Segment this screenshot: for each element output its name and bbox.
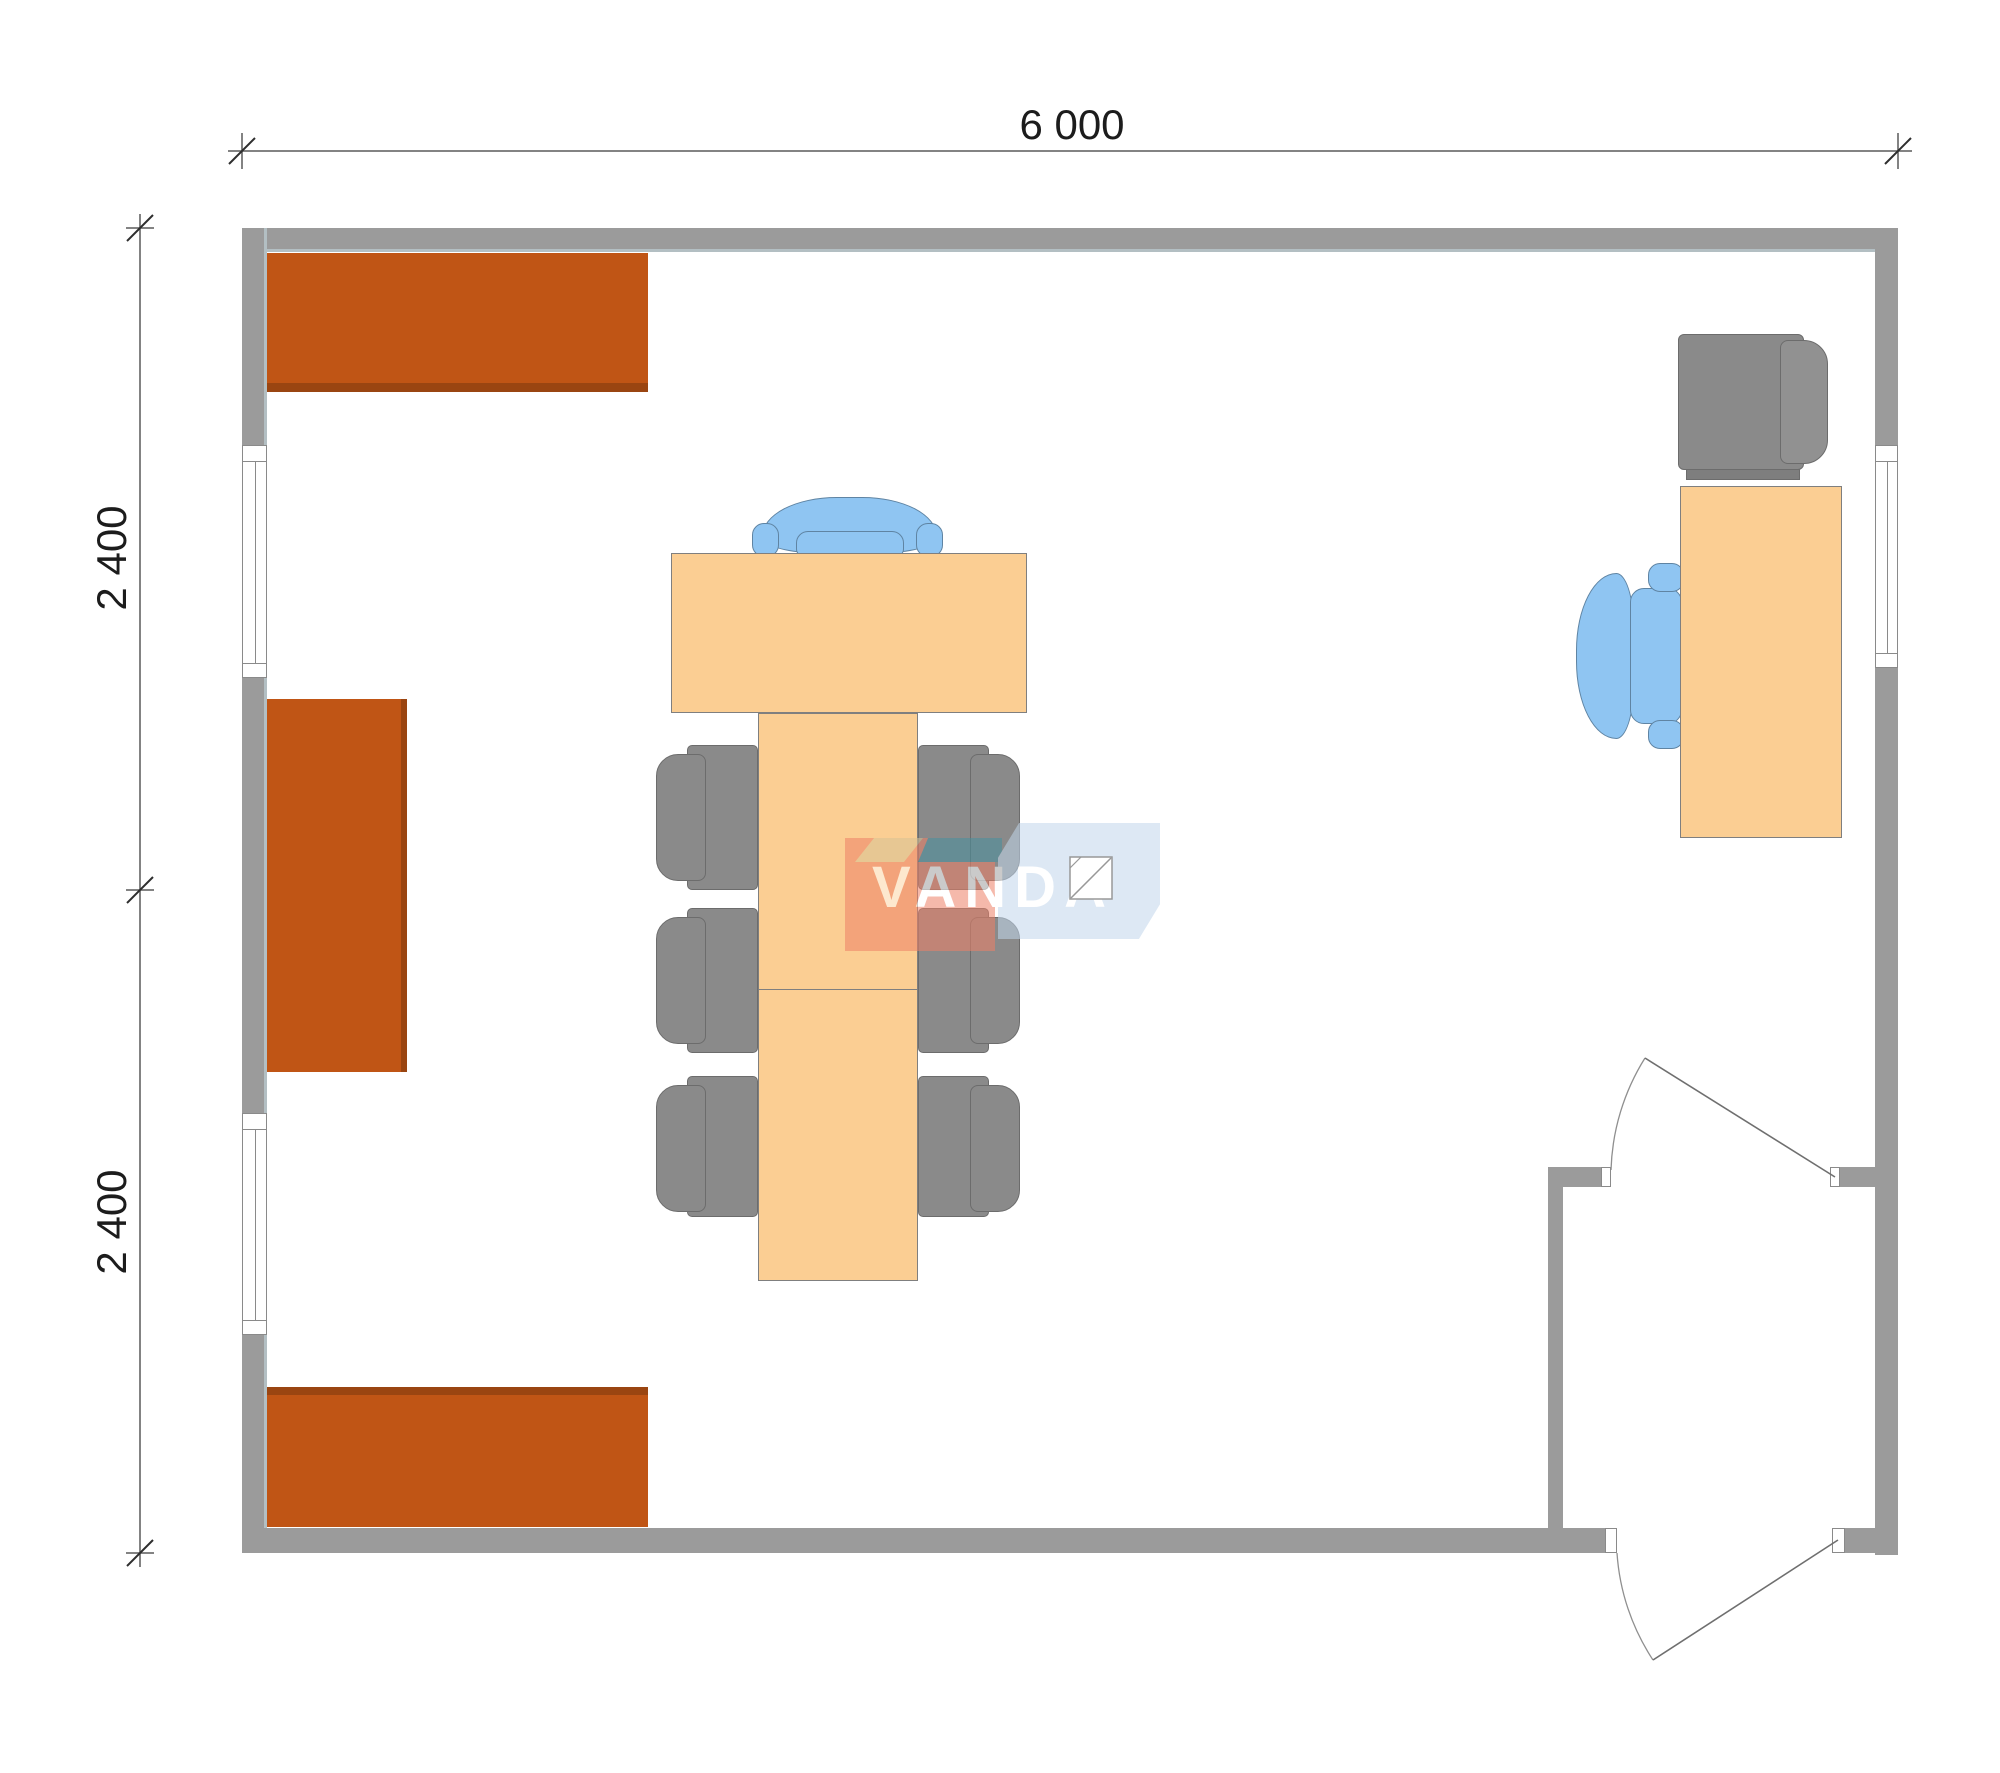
watermark-logo: VANDA xyxy=(845,823,1160,953)
interior-door-swing-arc xyxy=(1611,1058,1645,1170)
interior-door-leaf xyxy=(1645,1058,1835,1177)
exterior-door-leaf xyxy=(1653,1540,1838,1660)
watermark-window-icon xyxy=(1069,856,1113,900)
exterior-door-swing-arc xyxy=(1617,1553,1653,1660)
floor-plan-canvas: 6 000 2 400 2 400 VANDA xyxy=(0,0,2000,1773)
